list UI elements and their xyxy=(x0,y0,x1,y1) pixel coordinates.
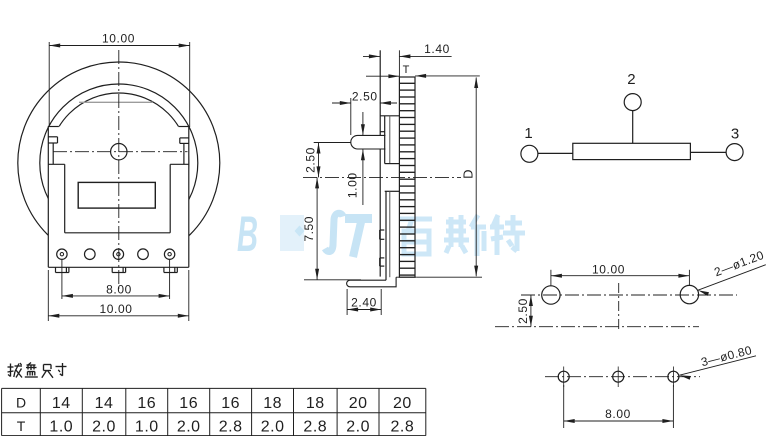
svg-text:1.00: 1.00 xyxy=(346,172,360,198)
svg-text:2.50: 2.50 xyxy=(352,90,378,104)
svg-text:B: B xyxy=(237,206,258,262)
svg-text:1.40: 1.40 xyxy=(424,42,450,56)
svg-text:2.40: 2.40 xyxy=(351,295,377,309)
svg-text:2.8: 2.8 xyxy=(391,418,415,435)
svg-text:D: D xyxy=(16,395,26,411)
svg-text:10.00: 10.00 xyxy=(99,302,132,316)
svg-text:18: 18 xyxy=(306,395,325,412)
svg-text:1.0: 1.0 xyxy=(135,418,159,435)
svg-text:D: D xyxy=(461,170,476,179)
svg-text:T: T xyxy=(403,64,410,76)
svg-text:8.00: 8.00 xyxy=(106,283,132,297)
svg-text:2.0: 2.0 xyxy=(261,418,285,435)
svg-text:2.50: 2.50 xyxy=(304,147,318,173)
svg-text:16: 16 xyxy=(179,395,198,412)
svg-text:2.8: 2.8 xyxy=(303,418,327,435)
svg-text:10.00: 10.00 xyxy=(102,32,135,46)
svg-text:14: 14 xyxy=(95,395,114,412)
svg-text:10.00: 10.00 xyxy=(592,262,625,276)
svg-text:2.0: 2.0 xyxy=(346,418,370,435)
svg-text:1: 1 xyxy=(524,125,532,142)
svg-text:2: 2 xyxy=(627,71,635,88)
svg-text:2.0: 2.0 xyxy=(177,418,201,435)
svg-text:20: 20 xyxy=(393,395,412,412)
svg-text:7.50: 7.50 xyxy=(302,216,316,242)
svg-text:1.0: 1.0 xyxy=(49,418,73,435)
svg-text:2.8: 2.8 xyxy=(219,418,243,435)
svg-text:20: 20 xyxy=(349,395,368,412)
svg-text:3: 3 xyxy=(731,126,739,143)
svg-text:2.0: 2.0 xyxy=(92,418,116,435)
svg-text:8.00: 8.00 xyxy=(605,407,631,421)
svg-text:T: T xyxy=(17,418,26,434)
svg-text:18: 18 xyxy=(263,395,282,412)
svg-text:16: 16 xyxy=(221,395,240,412)
svg-text:14: 14 xyxy=(52,395,71,412)
svg-text:2.50: 2.50 xyxy=(516,298,530,324)
svg-text:16: 16 xyxy=(137,395,156,412)
